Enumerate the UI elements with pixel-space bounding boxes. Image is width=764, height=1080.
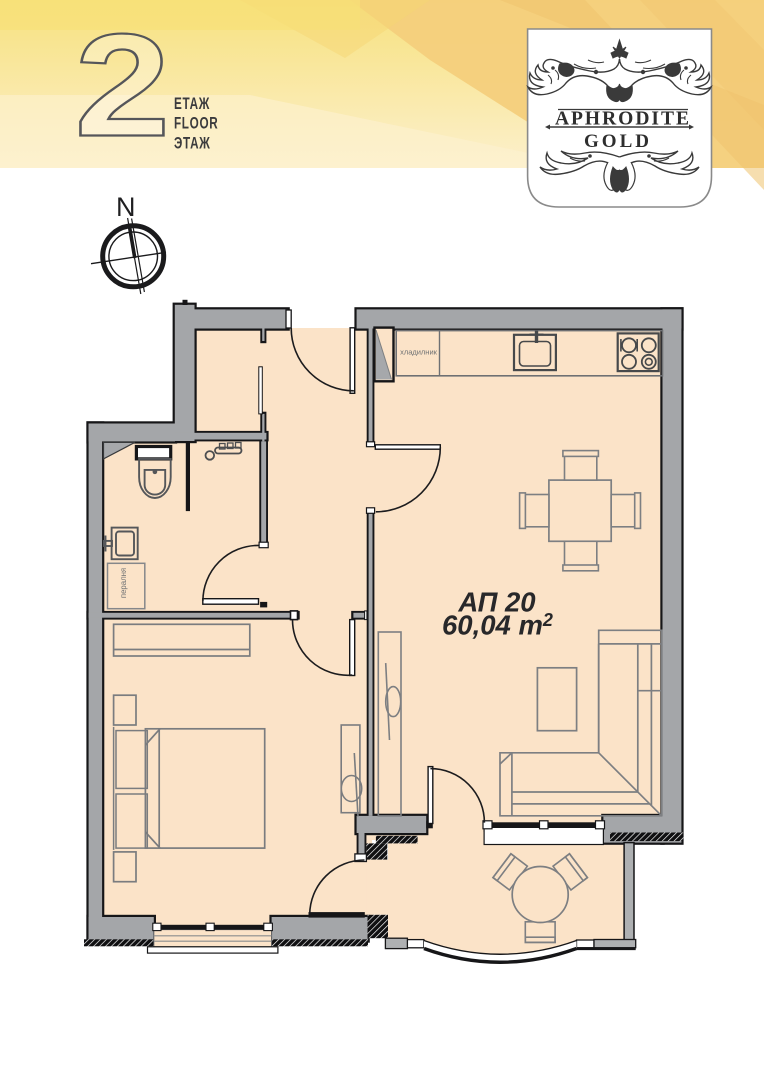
svg-text:60,04 m2: 60,04 m2 <box>442 610 553 641</box>
svg-text:2: 2 <box>75 3 171 167</box>
svg-text:N: N <box>116 192 136 222</box>
svg-text:хладилник: хладилник <box>400 348 438 357</box>
svg-text:GOLD: GOLD <box>584 131 652 152</box>
svg-text:FLOOR: FLOOR <box>174 115 219 133</box>
svg-text:ЕТАЖ: ЕТАЖ <box>174 95 210 113</box>
svg-text:ЭТАЖ: ЭТАЖ <box>174 135 211 153</box>
svg-text:пералня: пералня <box>119 568 128 598</box>
